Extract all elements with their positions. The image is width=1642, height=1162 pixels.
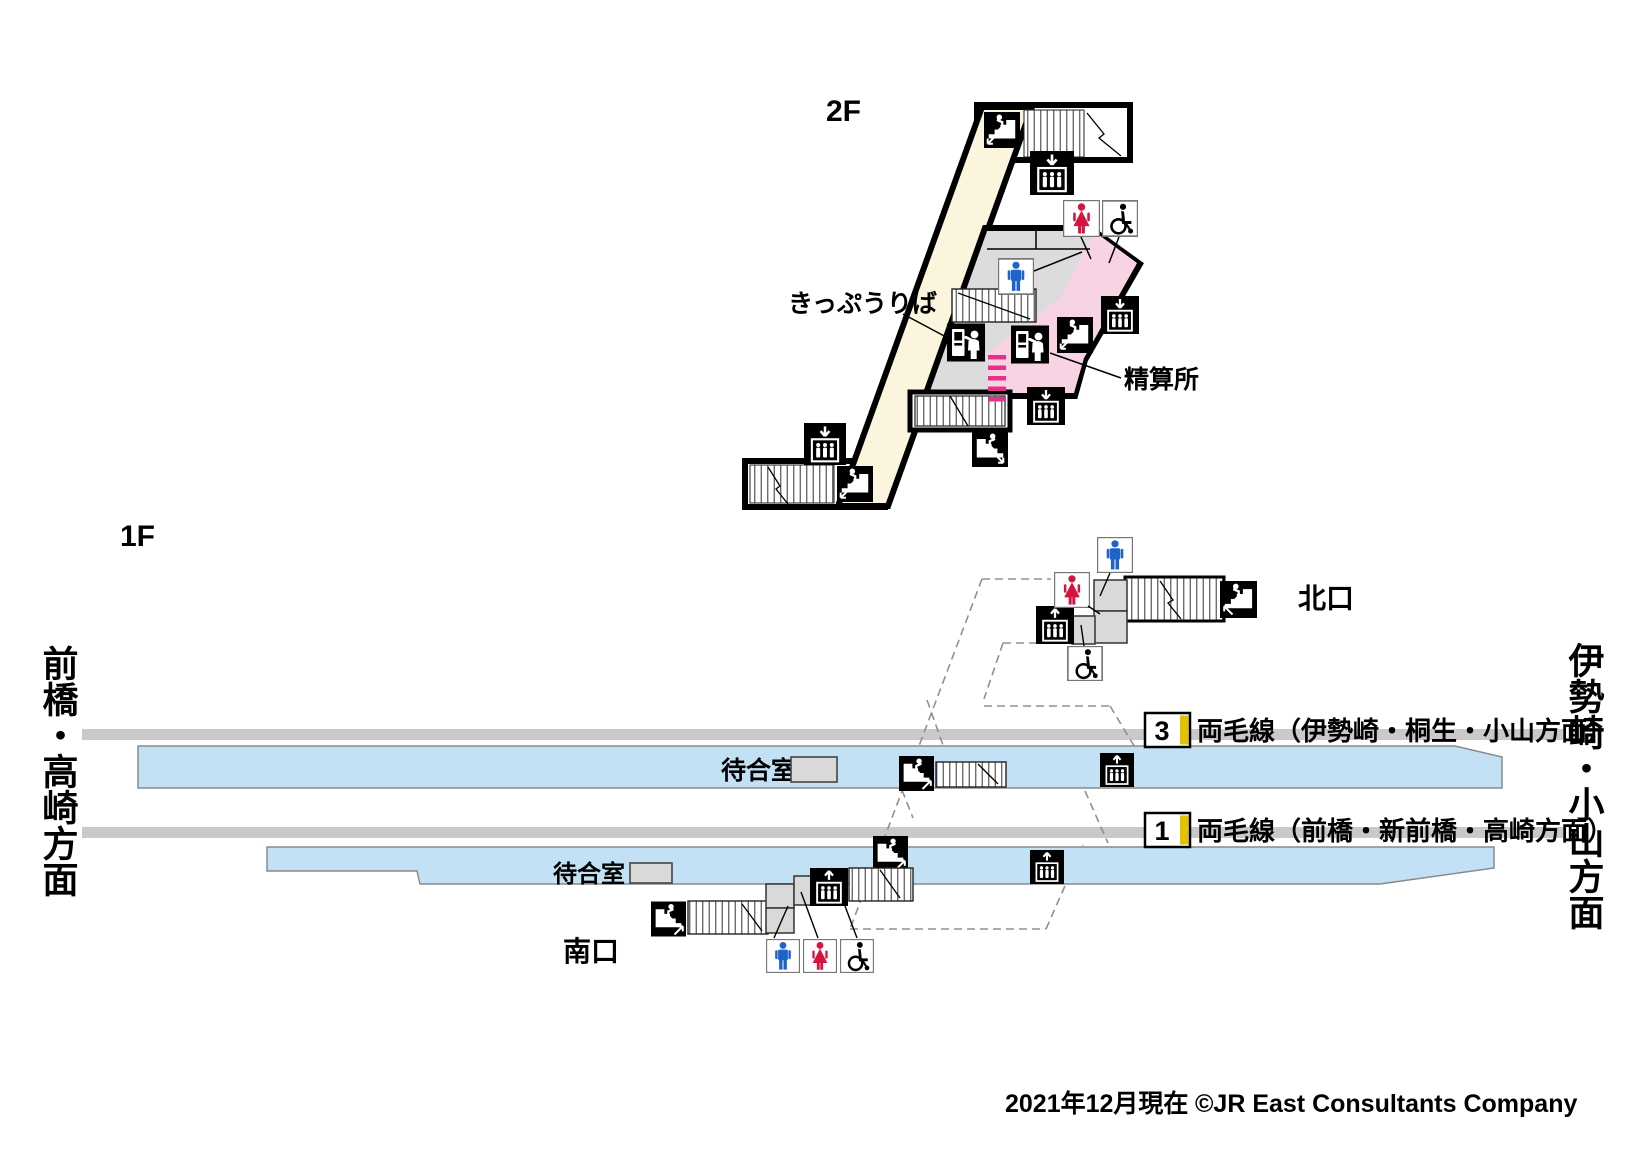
floor-2f-plan: 2F きっぷうりば 精算所 <box>745 95 1199 507</box>
north-exit-block: 北口 <box>1036 537 1354 681</box>
waiting-room-south: 待合室 <box>553 860 672 888</box>
staircase <box>1125 577 1224 621</box>
as-of-date: 2021年12月現在 <box>1005 1089 1188 1118</box>
elevator-down-icon <box>1027 387 1065 425</box>
toilet-room <box>1094 611 1127 643</box>
direction-label-right: 伊勢崎・小山方面 <box>1564 642 1606 930</box>
staircase <box>750 465 834 503</box>
waiting-room-label: 待合室 <box>721 756 796 785</box>
elevator-down-icon <box>804 423 846 465</box>
elevator-down-icon <box>1030 151 1074 195</box>
elevator-up-icon <box>810 868 848 906</box>
footer: 2021年12月現在 ©JR East Consultants Company <box>1005 1089 1577 1118</box>
ticket-office-label: きっぷうりば <box>788 290 937 318</box>
north-exit-label: 北口 <box>1298 583 1354 614</box>
floor-2f-label: 2F <box>826 95 861 128</box>
stairs-down-icon <box>1057 317 1093 353</box>
womens-toilet-icon <box>1063 200 1100 237</box>
wheelchair-icon <box>1068 646 1103 681</box>
copyright: ©JR East Consultants Company <box>1195 1090 1577 1118</box>
platform-1-sign: 1 両毛線（前橋・新前橋・高崎方面） <box>1145 813 1613 847</box>
stairs-up-icon <box>1220 581 1257 618</box>
waiting-room-label: 待合室 <box>553 860 625 888</box>
ticket-machine-icon <box>947 324 985 362</box>
elevator-down-icon <box>1101 296 1139 334</box>
toilet-room <box>766 908 794 933</box>
stairs-down-icon <box>972 431 1008 467</box>
floor-1f-plan: 3 両毛線（伊勢崎・桐生・小山方面） 1 両毛線（前橋・新前橋・高崎方面） 待合… <box>38 520 1614 973</box>
stairs-down-icon <box>837 466 873 502</box>
platform-1-line-label: 両毛線（前橋・新前橋・高崎方面） <box>1197 816 1613 846</box>
toilet-room <box>1094 580 1127 611</box>
elevator-up-icon <box>1030 850 1064 884</box>
wheelchair-icon <box>1102 201 1138 237</box>
platform-3-line-label: 両毛線（伊勢崎・桐生・小山方面） <box>1197 716 1613 746</box>
mens-toilet-icon <box>766 939 800 973</box>
staircase <box>688 901 768 934</box>
stairs-up-icon <box>873 836 908 871</box>
fare-adjustment-machine-icon <box>1011 326 1049 364</box>
womens-toilet-icon <box>1054 572 1090 608</box>
staircase <box>936 762 1006 787</box>
womens-toilet-icon <box>803 939 837 973</box>
stairs-down-icon <box>984 112 1020 148</box>
stairs-up-icon <box>899 756 934 791</box>
floor-1f-label: 1F <box>120 520 155 553</box>
fare-adjustment-label: 精算所 <box>1124 365 1199 394</box>
direction-label-left: 前橋・高崎方面 <box>38 645 79 897</box>
platform-3-number: 3 <box>1154 716 1169 746</box>
elevator-up-icon <box>1036 606 1074 644</box>
waiting-room-north: 待合室 <box>721 756 837 785</box>
mens-toilet-icon <box>1097 537 1133 573</box>
mens-toilet-icon <box>998 259 1034 295</box>
station-floor-map: 2F きっぷうりば 精算所 3 両毛線（伊勢崎・桐生・小山方面） 1 両毛線（前… <box>0 0 1642 1162</box>
elevator-up-icon <box>1100 753 1134 787</box>
toilet-room <box>766 884 794 908</box>
platform-3-sign: 3 両毛線（伊勢崎・桐生・小山方面） <box>1145 713 1613 747</box>
south-exit-label: 南口 <box>563 936 619 967</box>
stairs-up-icon <box>651 902 686 937</box>
platform-1-number: 1 <box>1154 816 1169 846</box>
staircase <box>849 868 913 901</box>
staircase <box>1024 110 1084 157</box>
wheelchair-icon <box>840 939 874 973</box>
